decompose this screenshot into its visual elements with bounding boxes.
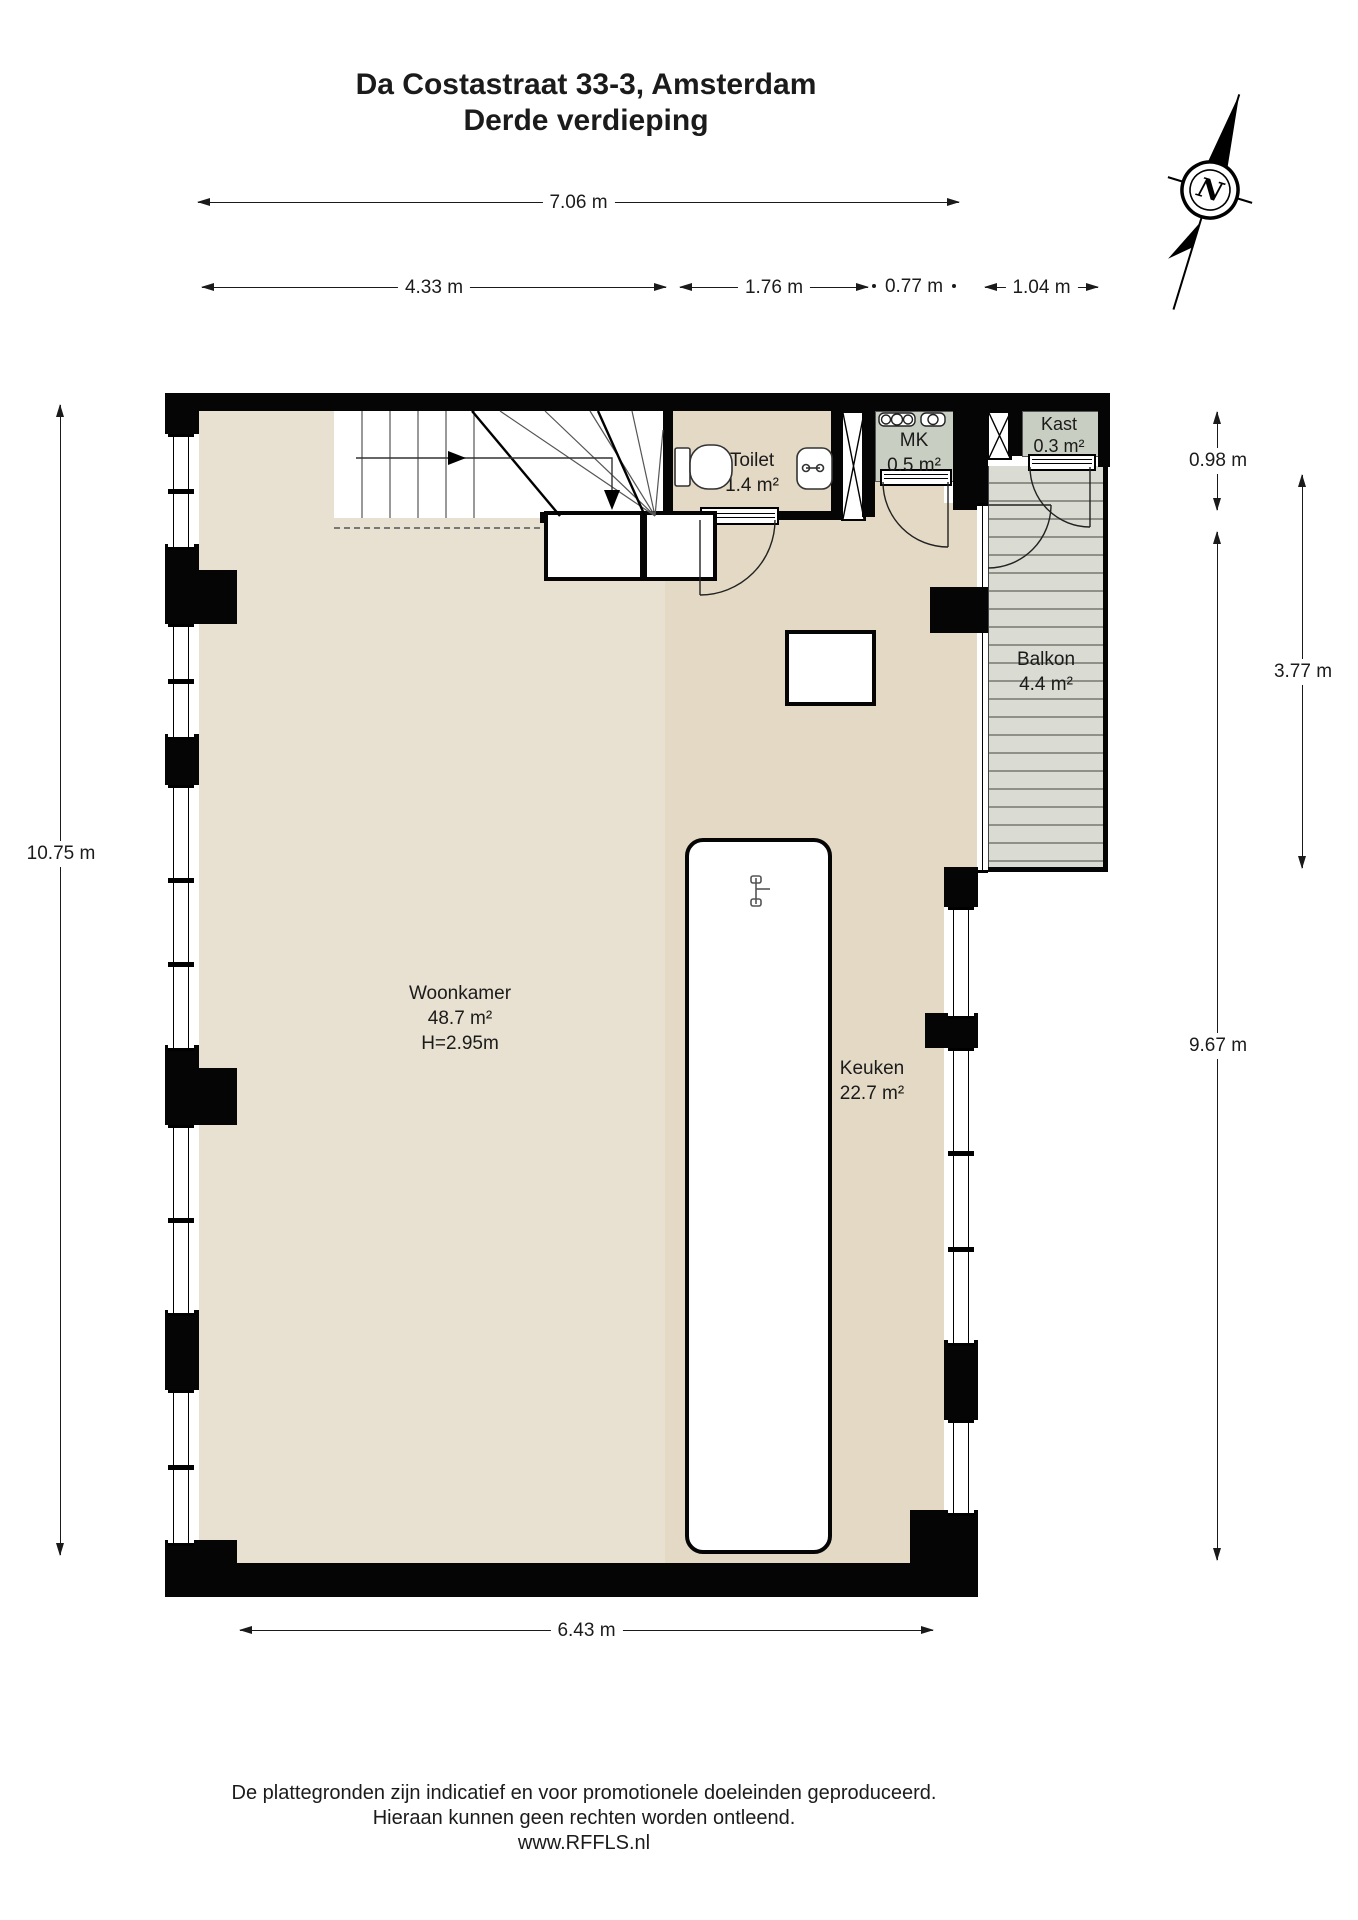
dimension-value: 7.06 m: [542, 192, 614, 214]
window: [168, 1390, 194, 1546]
balcony-south-edge: [978, 867, 1108, 872]
room-area: 0.3 m²: [1020, 435, 1098, 457]
room-area: 22.7 m²: [792, 1081, 952, 1106]
staircase: [334, 411, 663, 518]
page-subtitle: Derde verdieping: [0, 104, 1172, 138]
kitchen-counter-3: [785, 630, 876, 706]
room-name: Toilet: [672, 448, 832, 473]
west-wall-pier: [165, 544, 199, 624]
room-area: 4.4 m²: [966, 672, 1126, 697]
kast-east-wall: [1098, 411, 1110, 467]
page-title: Da Costastraat 33-3, Amsterdam: [0, 68, 1172, 102]
dimension-top-total: 7.06 m: [198, 202, 959, 203]
southeast-corner: [910, 1510, 978, 1597]
wall-mk-east: [953, 411, 988, 510]
room-area: 0.5 m²: [875, 453, 953, 478]
window: [948, 1420, 974, 1516]
kitchen-island: [685, 838, 832, 1554]
room-name: MK: [875, 428, 953, 453]
floorplan-page: Da Costastraat 33-3, Amsterdam Derde ver…: [0, 0, 1358, 1920]
west-wall-pier: [165, 734, 199, 785]
dimension-value: 10.75 m: [23, 841, 100, 867]
east-wall-pier: [944, 867, 978, 907]
window: [168, 1125, 194, 1316]
dimension-value: 1.04 m: [1005, 277, 1077, 299]
room-name: Kast: [1020, 413, 1098, 435]
west-wall-pier: [165, 1310, 199, 1390]
dimension-value: 0.77 m: [878, 276, 950, 298]
dimension-top-d: 1.04 m: [985, 287, 1098, 288]
west-wall-pier: [165, 1045, 199, 1125]
dimension-value: 3.77 m: [1270, 659, 1336, 685]
west-wall-pier-return: [199, 570, 237, 624]
room-label-woonkamer: Woonkamer 48.7 m² H=2.95m: [330, 981, 590, 1056]
south-wall: [165, 1563, 978, 1597]
footer-disclaimer-2: Hieraan kunnen geen rechten worden ontle…: [0, 1807, 1168, 1830]
balcony-east-edge: [1103, 411, 1108, 872]
room-label-toilet: Toilet 1.4 m²: [672, 448, 832, 498]
room-label-kast: Kast 0.3 m²: [1020, 413, 1098, 457]
stair-headroom-dashed-line: [334, 527, 540, 529]
room-name: Keuken: [792, 1056, 952, 1081]
kitchen-counter-2: [643, 511, 717, 581]
west-wall-pier-return: [199, 1068, 237, 1125]
toilet-east-wall: [831, 411, 841, 520]
east-wall-pier: [944, 1340, 978, 1420]
room-name: Woonkamer: [330, 981, 590, 1006]
toilet-south-wall-b: [773, 511, 841, 520]
dimension-right-main: 9.67 m: [1217, 532, 1218, 1560]
window: [948, 907, 974, 1019]
footer-website: www.RFFLS.nl: [0, 1832, 1168, 1855]
room-area: 48.7 m²: [330, 1006, 590, 1031]
window: [168, 624, 194, 740]
window: [168, 785, 194, 1051]
dimension-value: 9.67 m: [1185, 1033, 1251, 1059]
wall-toilet-mk: [862, 411, 875, 517]
southwest-corner: [165, 1540, 237, 1597]
window: [168, 434, 194, 550]
dimension-top-b: 1.76 m: [680, 287, 868, 288]
dimension-value: 4.33 m: [398, 277, 470, 299]
glass-wall-pier: [930, 587, 988, 633]
room-label-keuken: Keuken 22.7 m²: [792, 1056, 952, 1106]
room-ceiling-height: H=2.95m: [330, 1031, 590, 1056]
dimension-right-balcony: 3.77 m: [1302, 475, 1303, 868]
room-label-balkon: Balkon 4.4 m²: [966, 647, 1126, 697]
dimension-bottom: 6.43 m: [240, 1630, 933, 1631]
room-area: 1.4 m²: [672, 473, 832, 498]
duct-x-icon: [989, 413, 1010, 458]
dimension-value: 0.98 m: [1185, 448, 1251, 474]
dimension-right-top: 0.98 m: [1217, 412, 1218, 510]
footer-disclaimer-1: De plattegronden zijn indicatief en voor…: [0, 1782, 1168, 1805]
dimension-top-a: 4.33 m: [202, 287, 666, 288]
dimension-left-total: 10.75 m: [60, 405, 61, 1555]
west-wall-pier: [165, 393, 199, 434]
dimension-value: 6.43 m: [550, 1620, 622, 1642]
north-wall: [165, 393, 1110, 411]
duct-x-icon: [843, 413, 864, 519]
compass-north-label: N: [1193, 172, 1228, 210]
room-name: Balkon: [966, 647, 1126, 672]
dimension-value: 1.76 m: [738, 277, 810, 299]
room-label-mk: MK 0.5 m²: [875, 428, 953, 478]
kitchen-counter-1: [544, 511, 644, 581]
